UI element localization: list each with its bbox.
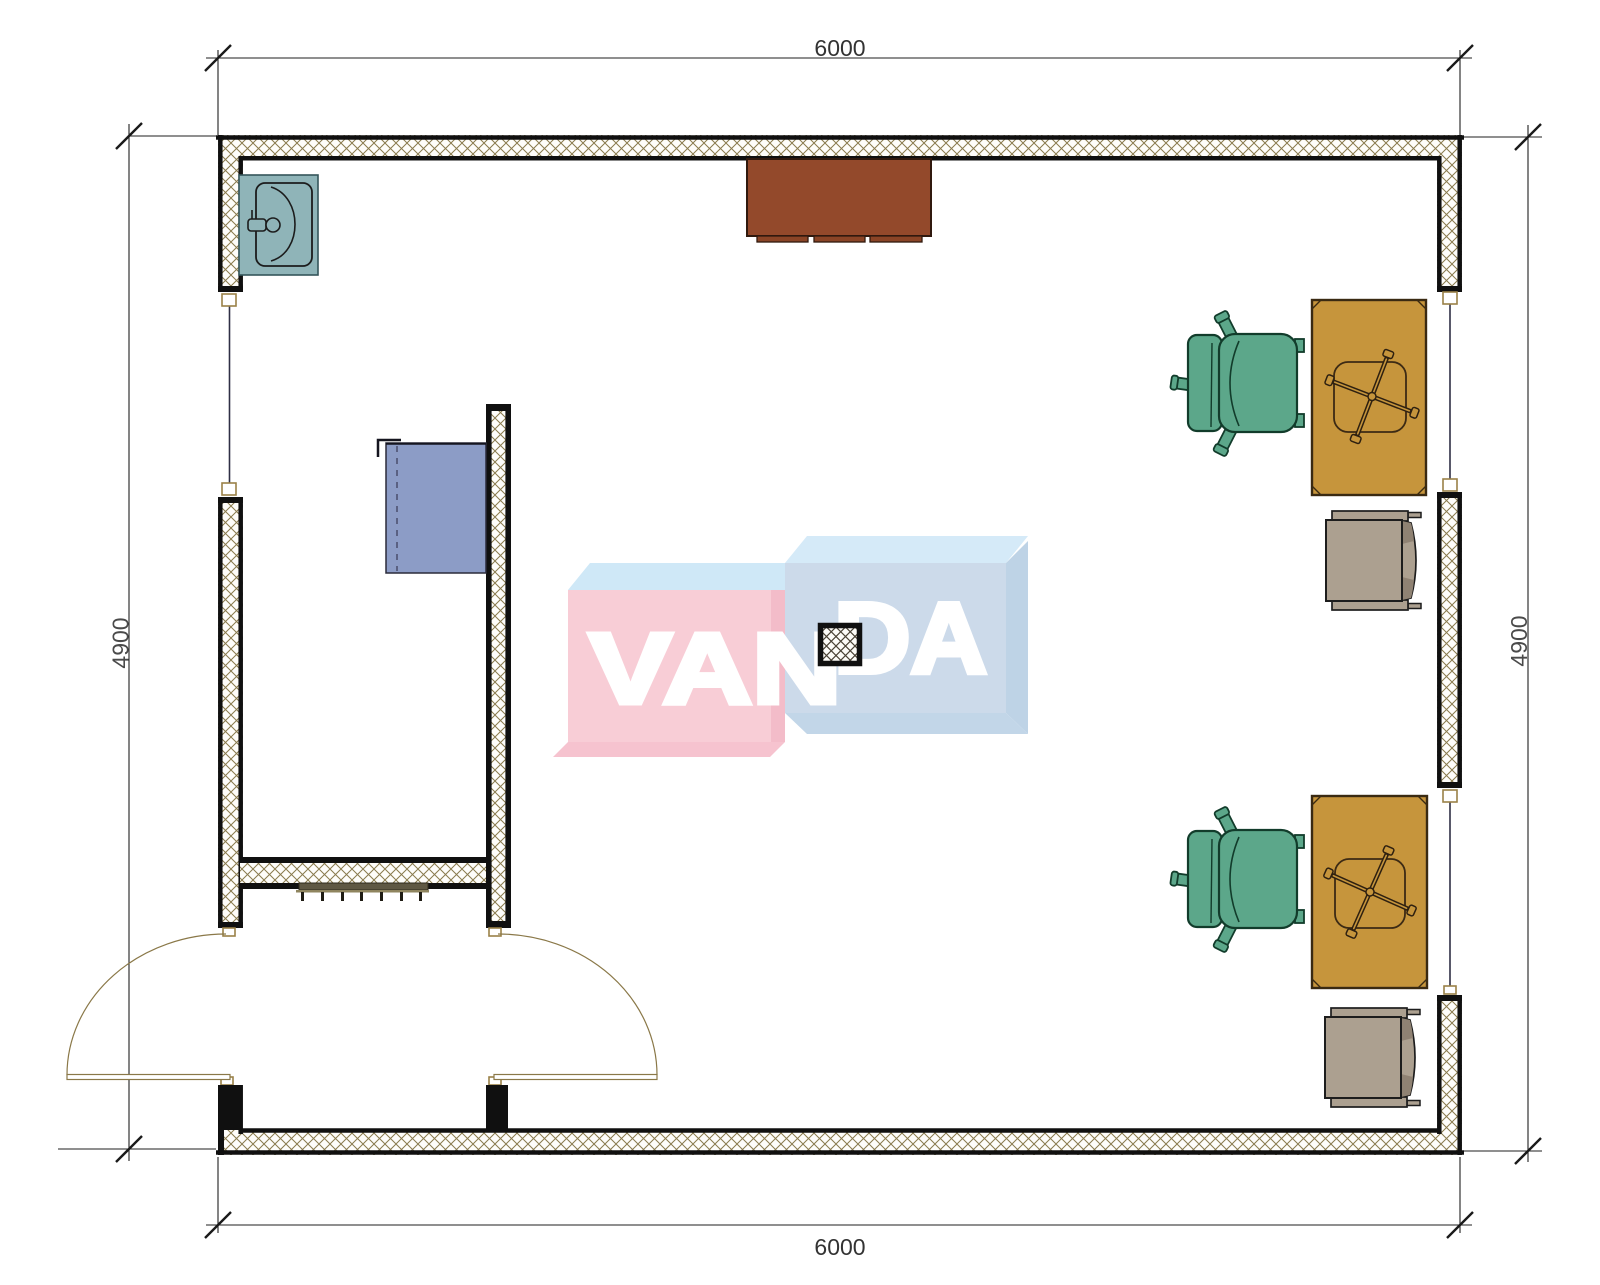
svg-text:6000: 6000	[814, 35, 865, 61]
svg-text:4900: 4900	[108, 617, 134, 668]
svg-text:6000: 6000	[814, 1234, 865, 1260]
svg-text:VAN: VAN	[589, 612, 842, 724]
svg-text:4900: 4900	[1506, 615, 1532, 666]
